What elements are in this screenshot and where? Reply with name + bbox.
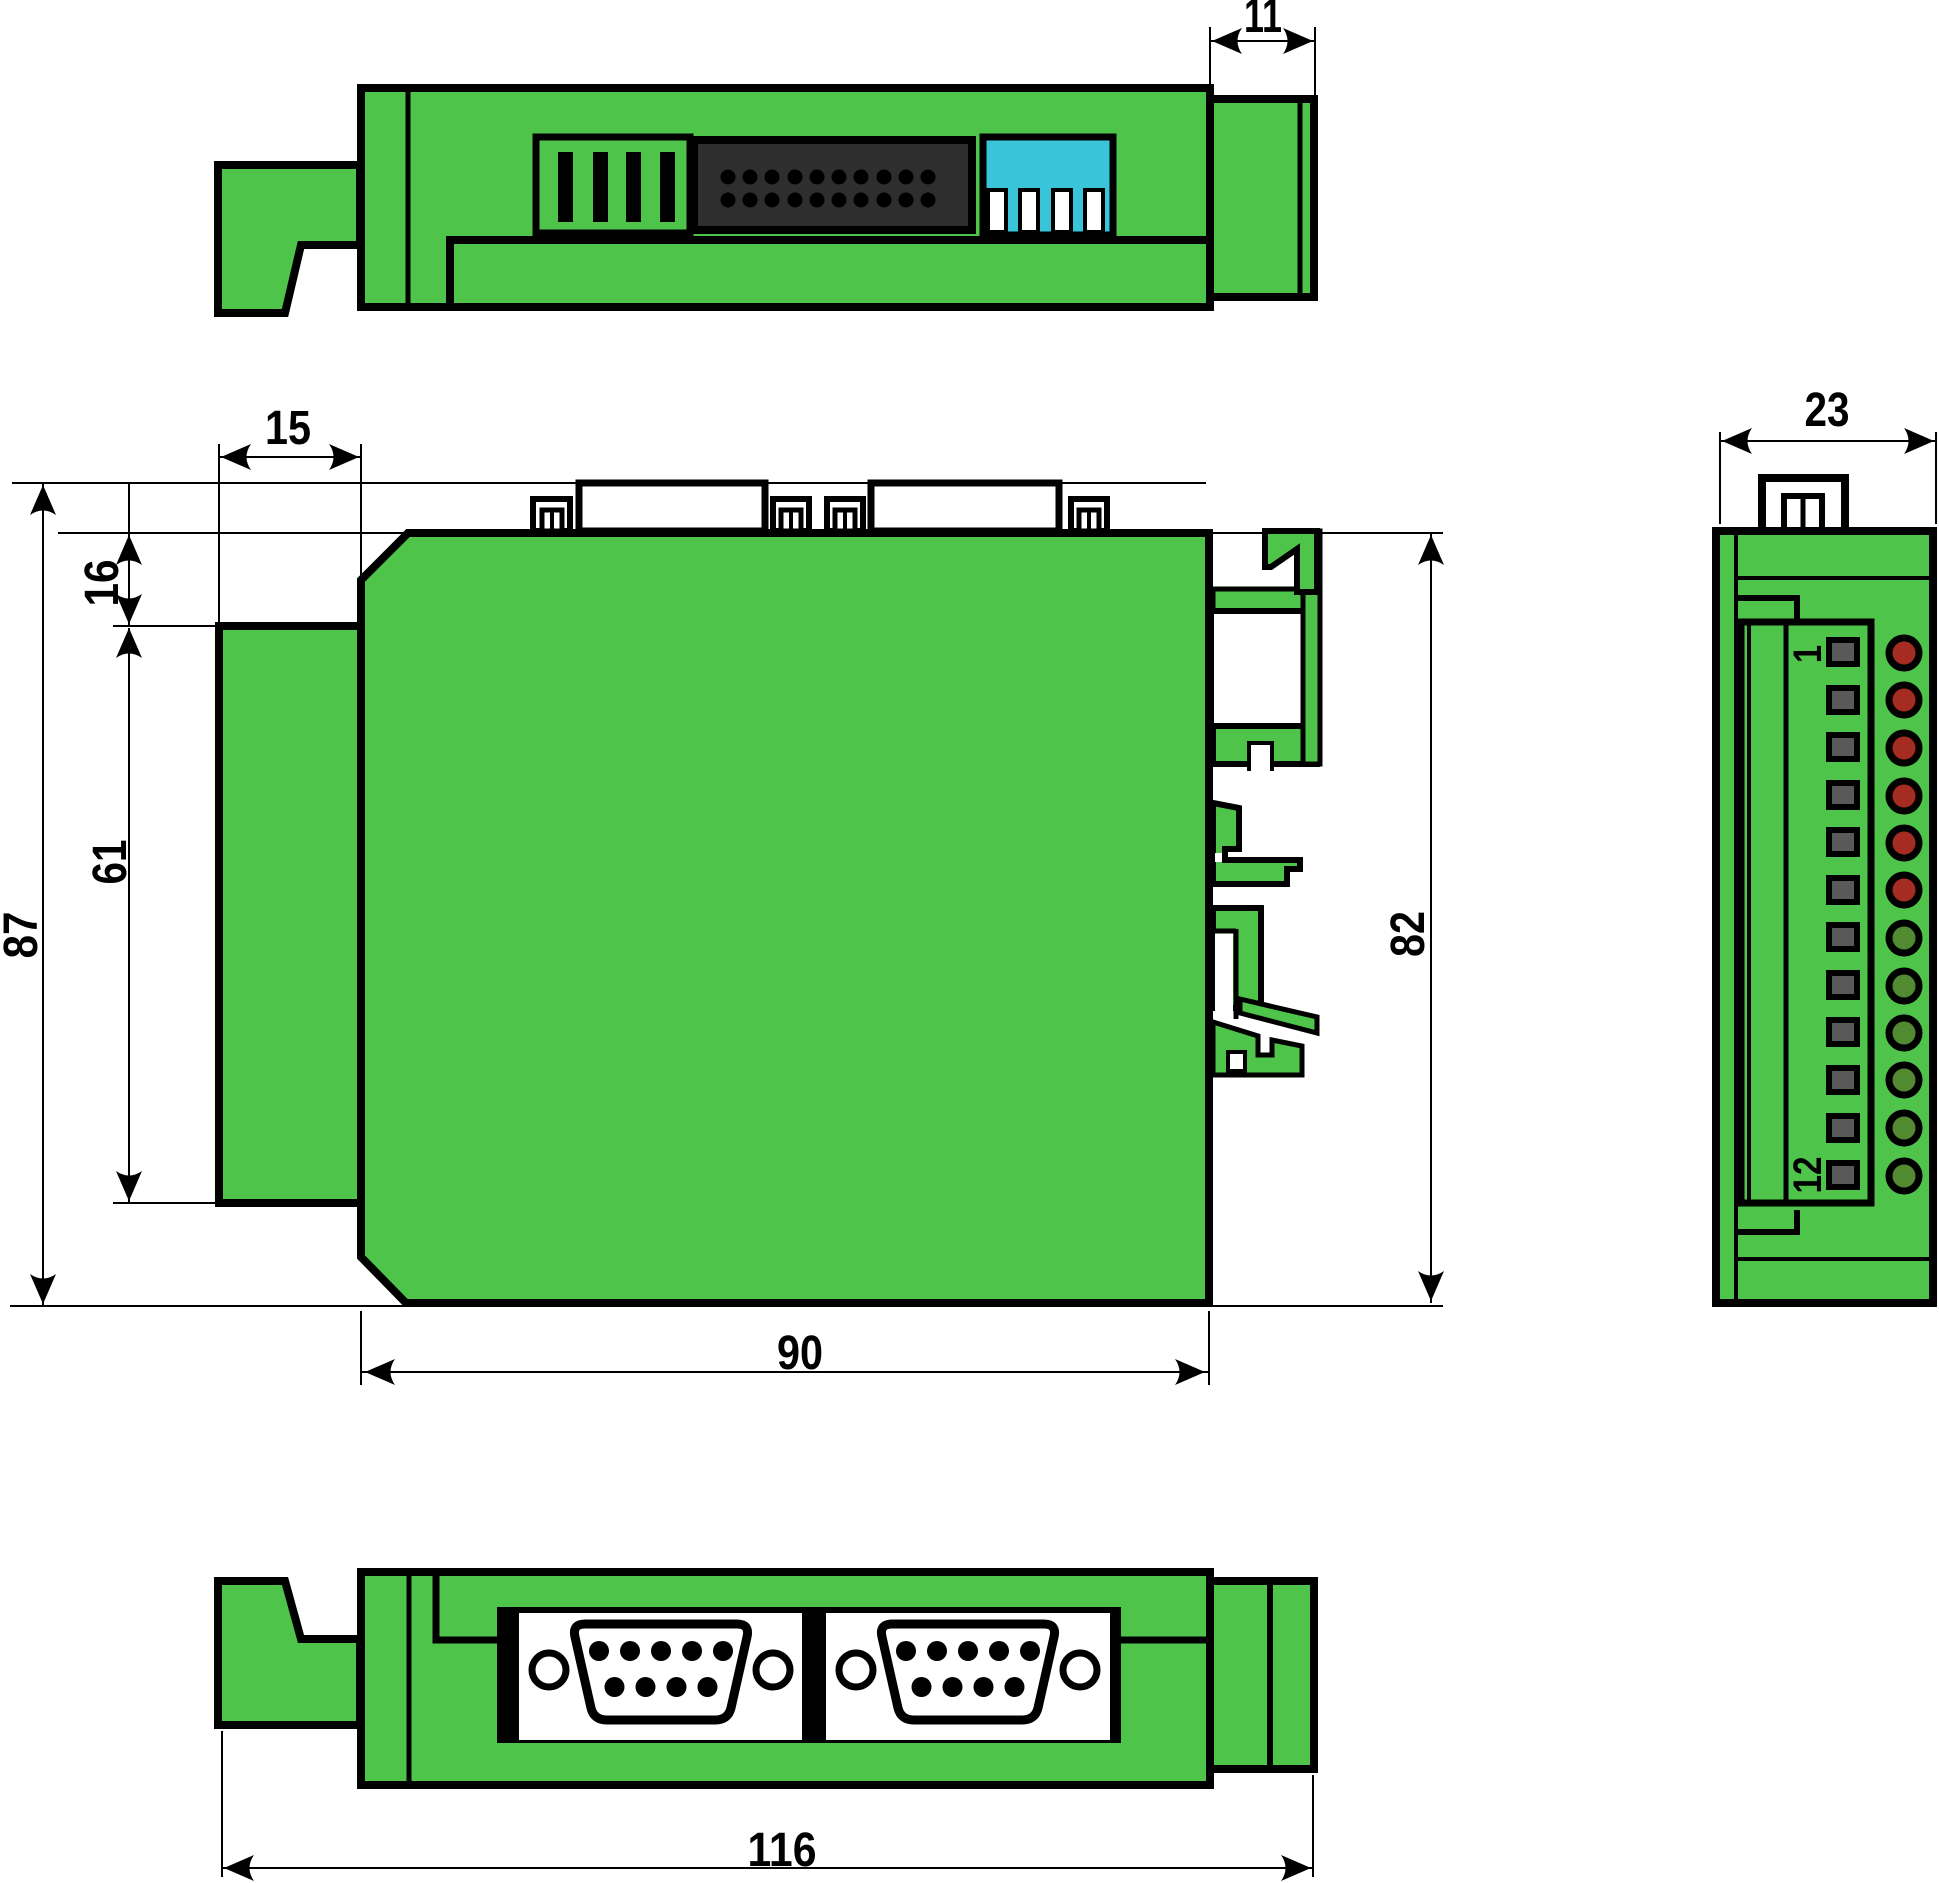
svg-text:61: 61 xyxy=(84,840,137,885)
svg-text:82: 82 xyxy=(1382,911,1435,957)
svg-text:16: 16 xyxy=(76,560,129,607)
svg-text:11: 11 xyxy=(1244,0,1282,43)
svg-text:87: 87 xyxy=(0,912,48,959)
svg-text:1: 1 xyxy=(1786,645,1830,663)
svg-text:23: 23 xyxy=(1805,384,1850,437)
svg-text:116: 116 xyxy=(748,1824,817,1877)
svg-text:90: 90 xyxy=(777,1327,823,1380)
svg-text:12: 12 xyxy=(1786,1157,1830,1194)
svg-text:15: 15 xyxy=(265,402,311,455)
